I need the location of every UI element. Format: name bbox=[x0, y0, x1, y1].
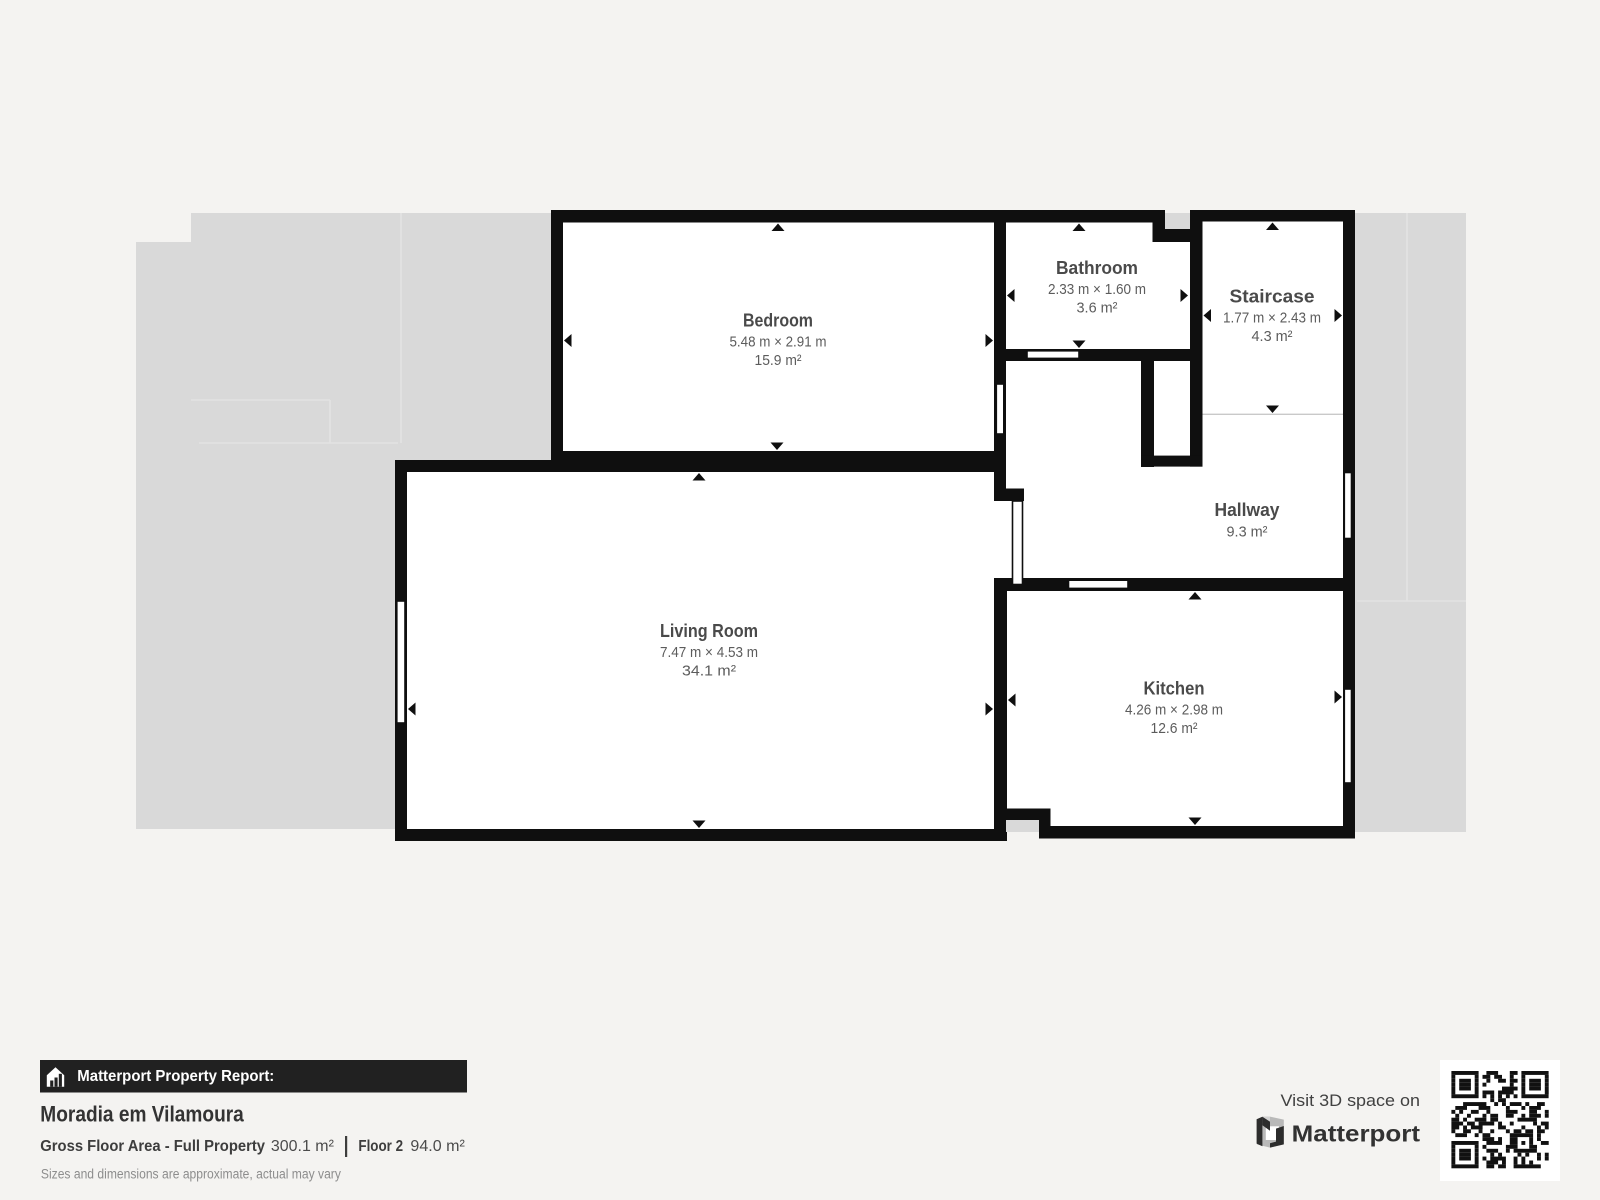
svg-text:2.33 m × 1.60 m: 2.33 m × 1.60 m bbox=[1048, 281, 1146, 298]
svg-text:12.6 m²: 12.6 m² bbox=[1151, 720, 1198, 737]
svg-text:Sizes and dimensions are appro: Sizes and dimensions are approximate, ac… bbox=[41, 1166, 341, 1181]
svg-text:Bedroom: Bedroom bbox=[743, 311, 813, 331]
svg-text:3.6 m²: 3.6 m² bbox=[1077, 299, 1118, 316]
svg-text:Gross Floor Area - Full Proper: Gross Floor Area - Full Property bbox=[40, 1138, 265, 1155]
svg-text:Staircase: Staircase bbox=[1230, 287, 1315, 307]
svg-text:4.26 m × 2.98 m: 4.26 m × 2.98 m bbox=[1125, 701, 1223, 718]
svg-text:Visit 3D space on: Visit 3D space on bbox=[1281, 1091, 1421, 1110]
svg-text:4.3 m²: 4.3 m² bbox=[1252, 328, 1293, 345]
svg-text:Matterport Property Report:: Matterport Property Report: bbox=[77, 1068, 274, 1085]
svg-text:7.47 m × 4.53 m: 7.47 m × 4.53 m bbox=[660, 644, 758, 661]
svg-text:Bathroom: Bathroom bbox=[1056, 258, 1138, 278]
svg-text:Moradia em Vilamoura: Moradia em Vilamoura bbox=[40, 1101, 244, 1126]
svg-text:34.1 m²: 34.1 m² bbox=[682, 662, 736, 679]
svg-text:94.0 m²: 94.0 m² bbox=[410, 1138, 465, 1155]
svg-text:Living Room: Living Room bbox=[660, 621, 758, 641]
svg-text:9.3 m²: 9.3 m² bbox=[1227, 523, 1268, 540]
svg-text:Floor 2: Floor 2 bbox=[358, 1138, 403, 1155]
svg-text:15.9 m²: 15.9 m² bbox=[755, 352, 802, 369]
svg-text:Matterport: Matterport bbox=[1292, 1120, 1420, 1146]
svg-text:Kitchen: Kitchen bbox=[1144, 679, 1205, 699]
svg-text:Hallway: Hallway bbox=[1215, 500, 1280, 520]
svg-text:5.48 m × 2.91 m: 5.48 m × 2.91 m bbox=[730, 333, 827, 350]
svg-text:300.1 m²: 300.1 m² bbox=[271, 1138, 335, 1155]
svg-text:1.77 m × 2.43 m: 1.77 m × 2.43 m bbox=[1223, 309, 1321, 326]
